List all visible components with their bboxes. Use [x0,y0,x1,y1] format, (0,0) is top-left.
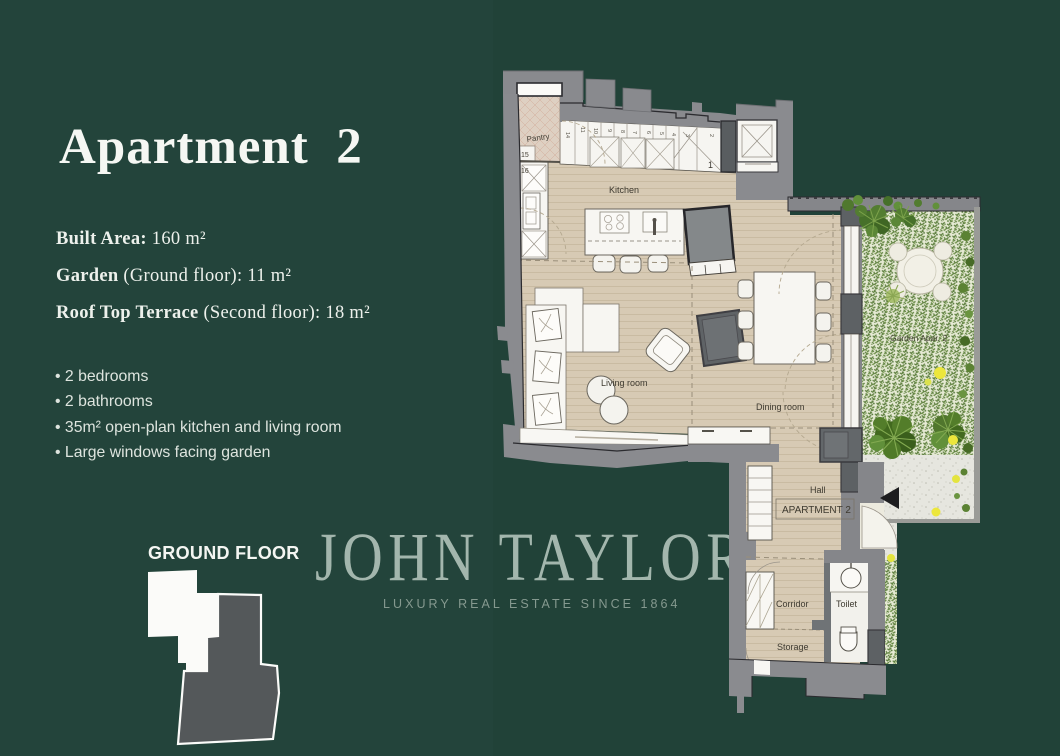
svg-text:2: 2 [708,134,714,137]
svg-text:APARTMENT 2: APARTMENT 2 [782,505,851,516]
svg-text:15: 15 [521,152,529,159]
svg-text:14: 14 [564,132,570,138]
svg-text:1: 1 [708,160,713,170]
svg-text:Hall: Hall [810,485,826,495]
svg-text:6: 6 [645,131,651,134]
svg-text:Dining room: Dining room [756,402,805,412]
svg-text:Garden Apar. 2: Garden Apar. 2 [890,333,947,343]
svg-text:Corridor: Corridor [776,599,809,609]
svg-text:Storage: Storage [777,642,809,652]
svg-text:Kitchen: Kitchen [609,185,639,195]
svg-text:8: 8 [619,130,625,133]
svg-text:7: 7 [631,131,637,134]
svg-text:Living room: Living room [601,378,648,388]
svg-text:Toilet: Toilet [836,599,858,609]
svg-text:10: 10 [592,128,598,134]
svg-text:5: 5 [658,132,664,135]
svg-text:4: 4 [670,133,676,136]
svg-text:9: 9 [606,129,612,132]
svg-text:11: 11 [579,127,585,133]
svg-text:16: 16 [521,168,529,175]
svg-text:3: 3 [684,134,690,137]
